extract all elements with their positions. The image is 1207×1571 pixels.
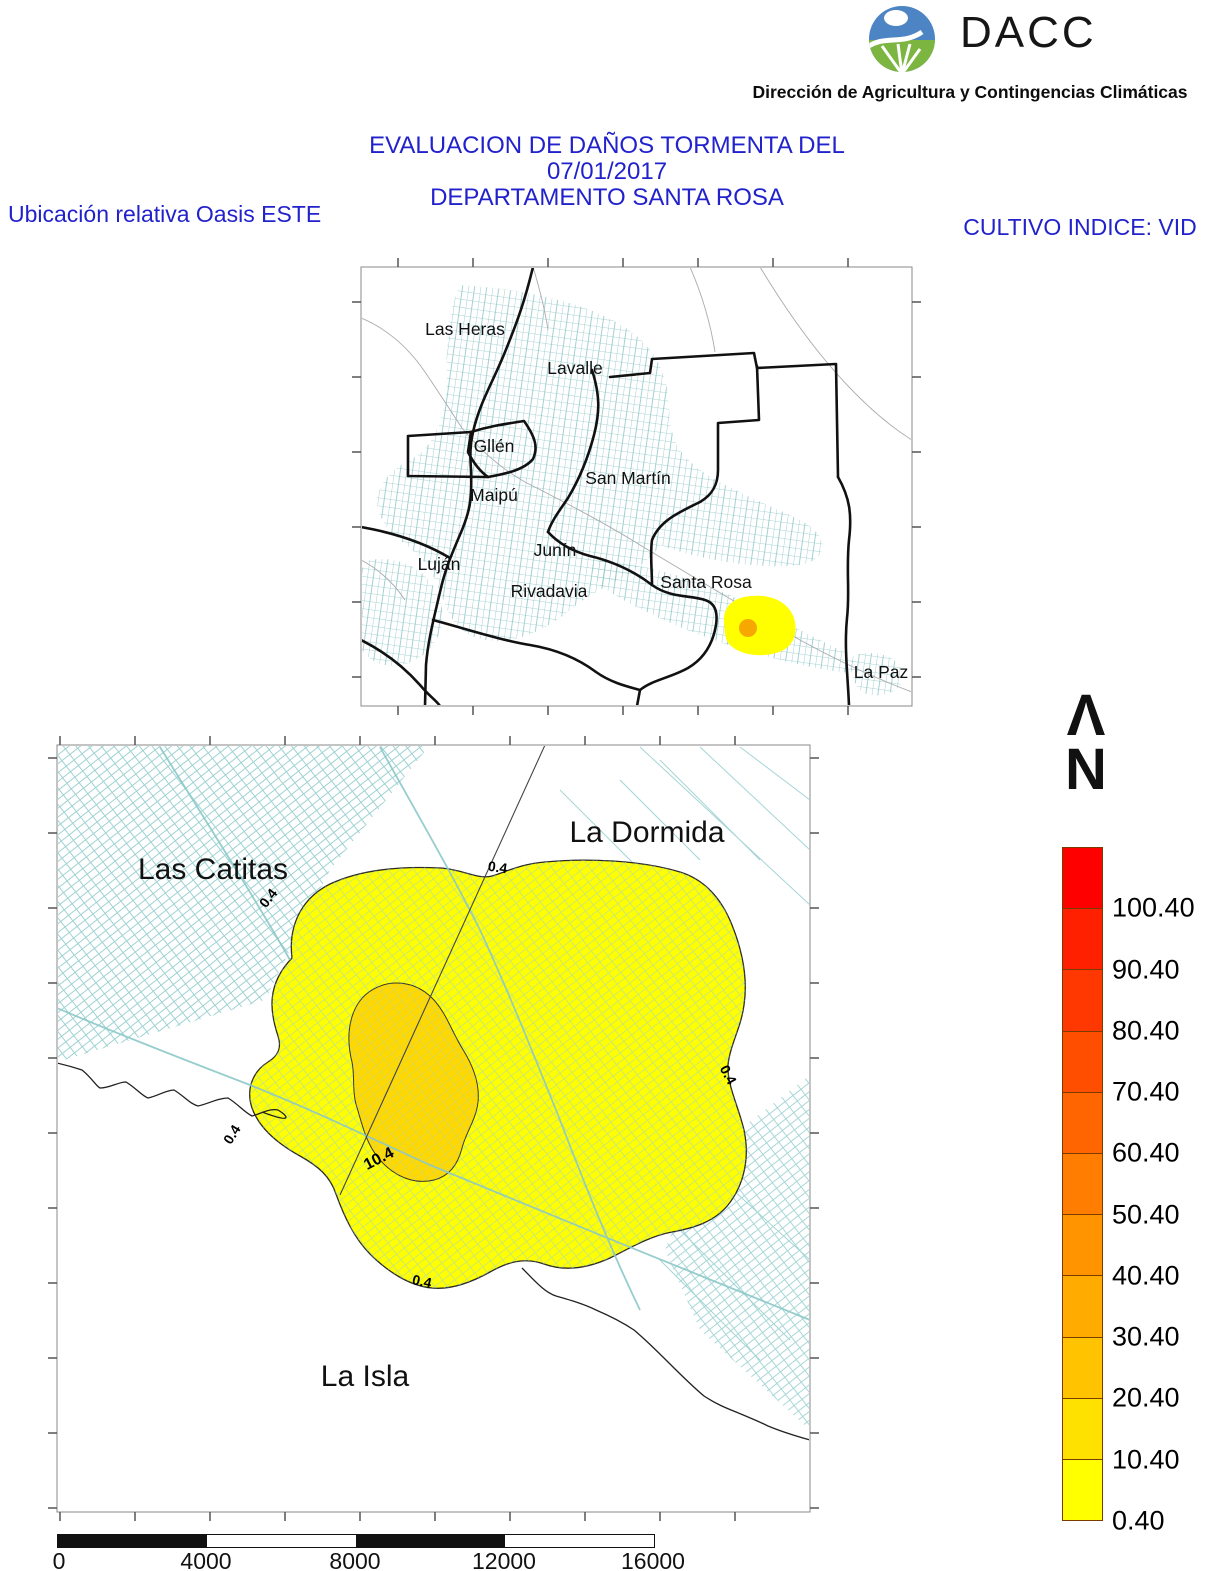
scale-segment: [58, 1535, 207, 1547]
scale-label-8000: 8000: [329, 1548, 380, 1571]
legend-value-label: 90.40: [1112, 954, 1180, 985]
distance-scale-bar: [57, 1534, 655, 1548]
legend-color-segment: [1063, 970, 1102, 1031]
legend-color-segment: [1063, 1215, 1102, 1276]
overview-label-rivadavia: Rivadavia: [511, 581, 588, 601]
north-arrow: Λ N: [1058, 690, 1114, 798]
legend-value-label: 10.40: [1112, 1444, 1180, 1475]
overview-damage-core: [739, 619, 757, 637]
legend-color-segment: [1063, 1032, 1102, 1093]
scale-label-4000: 4000: [180, 1548, 231, 1571]
maps-canvas: Las Heras Lavalle Gllén Maipú San Martín…: [0, 0, 1207, 1571]
legend-color-segment: [1063, 1338, 1102, 1399]
legend-scale: [1062, 847, 1103, 1521]
legend-color-segment: [1063, 1399, 1102, 1460]
legend-labels: 100.4090.4080.4070.4060.4050.4040.4030.4…: [1112, 847, 1207, 1521]
overview-label-las-heras: Las Heras: [425, 319, 505, 339]
legend-value-label: 80.40: [1112, 1015, 1180, 1046]
legend-color-segment: [1063, 848, 1102, 909]
distance-scale-labels: 0 4000 8000 12000 16000: [57, 1548, 697, 1571]
north-arrow-label: N: [1058, 742, 1114, 798]
overview-label-san-martin: San Martín: [585, 468, 671, 488]
legend-color-segment: [1063, 1154, 1102, 1215]
overview-label-maipu: Maipú: [470, 485, 518, 505]
legend-color-segment: [1063, 1093, 1102, 1154]
overview-label-lujan: Luján: [418, 554, 461, 574]
overview-label-santa-rosa: Santa Rosa: [660, 572, 752, 592]
detail-label-las-catitas: Las Catitas: [138, 853, 288, 886]
report-page: DACC Dirección de Agricultura y Continge…: [0, 0, 1207, 1571]
north-arrow-icon: Λ: [1058, 690, 1114, 742]
legend-value-label: 50.40: [1112, 1199, 1180, 1230]
scale-segment: [207, 1535, 356, 1547]
legend-value-label: 70.40: [1112, 1077, 1180, 1108]
overview-label-la-paz: La Paz: [854, 662, 908, 682]
legend-value-label: 0.40: [1112, 1506, 1165, 1537]
scale-segment: [356, 1535, 505, 1547]
scale-label-12000: 12000: [472, 1548, 536, 1571]
overview-map: Las Heras Lavalle Gllén Maipú San Martín…: [352, 258, 921, 715]
overview-label-gllen: Gllén: [474, 436, 515, 456]
legend-color-segment: [1063, 1460, 1102, 1520]
scale-label-0: 0: [53, 1548, 66, 1571]
scale-label-16000: 16000: [621, 1548, 685, 1571]
detail-map: 0.4 0.4 0.4 0.4 0.4 10.4 Las Catitas La …: [48, 736, 819, 1521]
legend-value-label: 20.40: [1112, 1383, 1180, 1414]
detail-label-la-isla: La Isla: [321, 1360, 410, 1393]
legend-value-label: 60.40: [1112, 1138, 1180, 1169]
detail-label-la-dormida: La Dormida: [569, 816, 724, 849]
legend-value-label: 30.40: [1112, 1322, 1180, 1353]
legend-color-segment: [1063, 1276, 1102, 1337]
overview-label-junin: Junín: [534, 540, 577, 560]
contour-label-top: 0.4: [487, 858, 509, 877]
legend-value-label: 100.40: [1112, 893, 1195, 924]
legend-color-segment: [1063, 909, 1102, 970]
scale-segment: [505, 1535, 654, 1547]
overview-label-lavalle: Lavalle: [547, 358, 602, 378]
legend-value-label: 40.40: [1112, 1260, 1180, 1291]
